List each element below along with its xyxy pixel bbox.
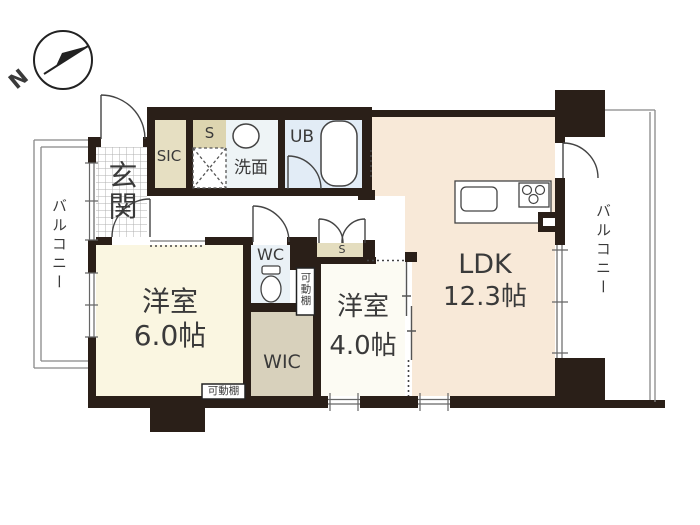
shelf-vertical-label: 可動棚 bbox=[300, 272, 311, 307]
toilet-bowl bbox=[261, 276, 281, 302]
sic-label: SIC bbox=[152, 149, 186, 164]
entrance-label: 玄関 bbox=[106, 160, 135, 222]
dashed-storage-box bbox=[193, 148, 226, 188]
storage-closet-door-left bbox=[319, 219, 343, 243]
washbasin bbox=[233, 124, 259, 148]
stove-burner bbox=[523, 186, 532, 195]
kitchen-sink bbox=[461, 187, 497, 211]
kitchen-wall-notch bbox=[543, 218, 555, 226]
balcony-right-rail bbox=[605, 110, 655, 402]
washroom-label: 洗面 bbox=[224, 160, 278, 177]
bedroom2-floor bbox=[321, 262, 405, 396]
shelf-bottom-label: 可動棚 bbox=[202, 386, 245, 397]
floorplan: N バルコニー バルコニー 玄関 SIC S 洗面 UB WC WIC S 可動… bbox=[0, 0, 700, 525]
wc-door bbox=[253, 206, 289, 242]
storage-top-label: S bbox=[193, 126, 226, 141]
toilet-tank bbox=[262, 266, 280, 274]
balcony-door bbox=[563, 143, 598, 178]
bedroom2-size: 4.0帖 bbox=[319, 333, 407, 359]
unit-bath-label: UB bbox=[285, 129, 319, 146]
ldk-label: LDK bbox=[430, 251, 540, 278]
storage-closet-label: S bbox=[317, 244, 367, 255]
balcony-left-label: バルコニー bbox=[51, 198, 66, 293]
bedroom1-label: 洋室 bbox=[103, 288, 237, 316]
balcony-right-label: バルコニー bbox=[595, 203, 610, 298]
ldk-size: 12.3帖 bbox=[430, 284, 540, 310]
stove-burner bbox=[536, 186, 545, 195]
wc-label: WC bbox=[251, 247, 290, 263]
compass bbox=[34, 31, 92, 89]
storage-closet-door-right bbox=[342, 219, 365, 243]
front-door bbox=[101, 95, 145, 139]
bathtub bbox=[321, 121, 357, 186]
bedroom2-label: 洋室 bbox=[319, 294, 407, 320]
stove-burner bbox=[529, 195, 538, 204]
wic-label: WIC bbox=[251, 353, 313, 372]
bedroom1-size: 6.0帖 bbox=[103, 322, 237, 350]
